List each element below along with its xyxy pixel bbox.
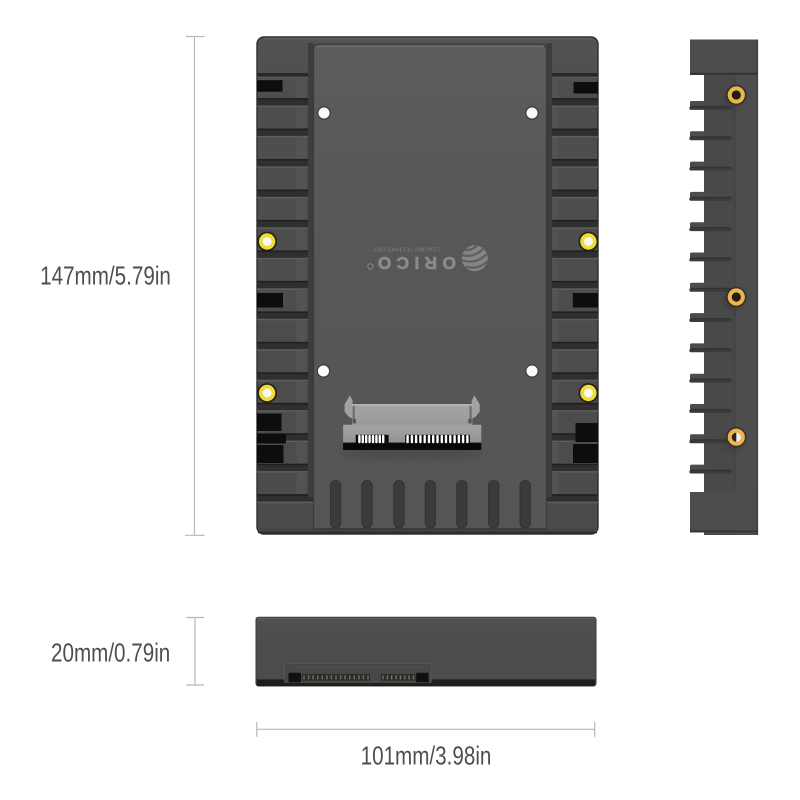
svg-text:LEADING TECHNOLOGY: LEADING TECHNOLOGY: [373, 246, 439, 252]
svg-text:ORICO: ORICO: [372, 253, 455, 273]
svg-text:147mm/5.79in: 147mm/5.79in: [40, 261, 171, 290]
svg-text:101mm/3.98in: 101mm/3.98in: [361, 741, 492, 770]
svg-text:20mm/0.79in: 20mm/0.79in: [51, 638, 170, 667]
